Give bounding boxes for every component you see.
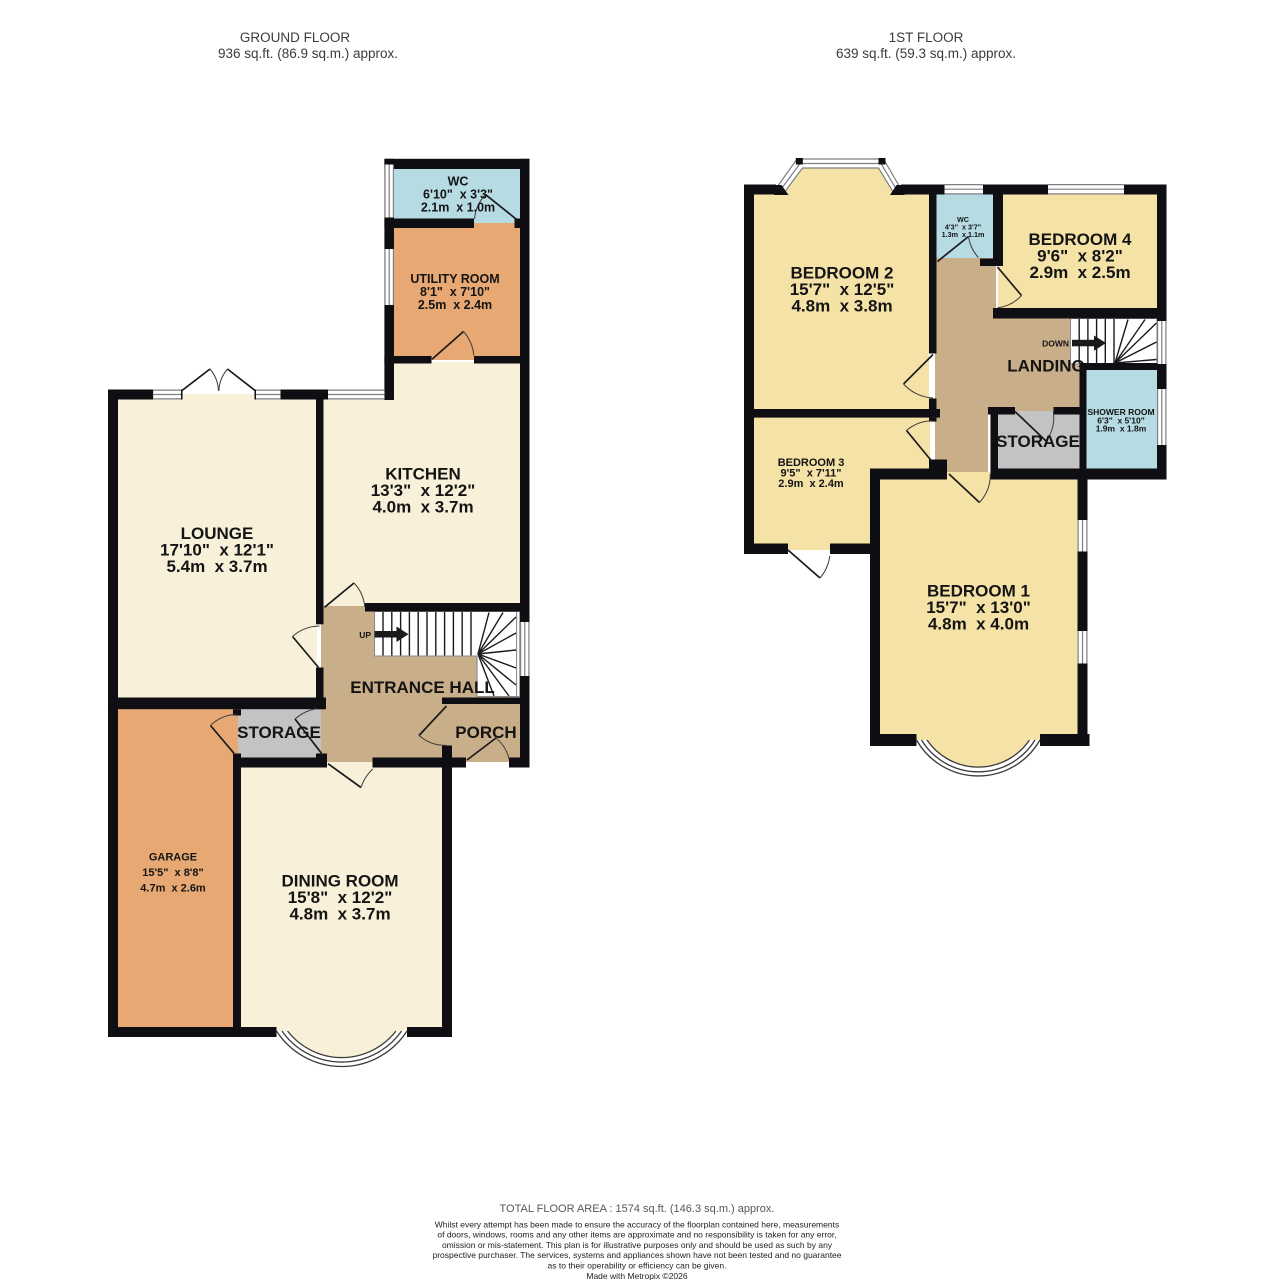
svg-text:of doors, windows, rooms and a: of doors, windows, rooms and any other i… (437, 1230, 836, 1240)
svg-text:5.4m x 3.7m: 5.4m x 3.7m (166, 557, 267, 576)
svg-text:4.7m x 2.6m: 4.7m x 2.6m (140, 883, 206, 895)
svg-text:TOTAL FLOOR AREA : 1574 sq.ft.: TOTAL FLOOR AREA : 1574 sq.ft. (146.3 sq… (500, 1203, 775, 1215)
svg-text:UP: UP (359, 630, 371, 640)
svg-text:4.0m x 3.7m: 4.0m x 3.7m (372, 498, 473, 517)
svg-text:1.3m x 1.1m: 1.3m x 1.1m (942, 230, 985, 239)
svg-text:ENTRANCE HALL: ENTRANCE HALL (350, 678, 495, 697)
svg-text:2.5m x 2.4m: 2.5m x 2.4m (418, 298, 492, 312)
svg-text:Made with Metropix ©2026: Made with Metropix ©2026 (586, 1271, 688, 1280)
svg-text:15'5" x 8'8": 15'5" x 8'8" (142, 867, 204, 879)
svg-text:as to their operability or eff: as to their operability or efficiency ca… (548, 1261, 727, 1271)
svg-text:WC: WC (448, 175, 469, 189)
svg-text:1ST FLOOR: 1ST FLOOR (889, 30, 964, 45)
svg-text:GARAGE: GARAGE (149, 852, 197, 864)
svg-text:LANDING: LANDING (1007, 357, 1084, 376)
svg-text:STORAGE: STORAGE (237, 723, 321, 742)
svg-text:GROUND FLOOR: GROUND FLOOR (240, 30, 351, 45)
svg-text:DOWN: DOWN (1042, 339, 1069, 349)
svg-text:4.8m x 4.0m: 4.8m x 4.0m (928, 615, 1029, 634)
svg-text:1.9m x 1.8m: 1.9m x 1.8m (1096, 424, 1147, 434)
svg-text:4.8m x 3.8m: 4.8m x 3.8m (791, 297, 892, 316)
svg-text:UTILITY ROOM: UTILITY ROOM (410, 272, 499, 286)
svg-text:2.9m x 2.4m: 2.9m x 2.4m (778, 478, 844, 490)
svg-text:639 sq.ft. (59.3 sq.m.) approx: 639 sq.ft. (59.3 sq.m.) approx. (836, 46, 1016, 61)
svg-text:STORAGE: STORAGE (996, 432, 1080, 451)
svg-text:2.1m x 1.0m: 2.1m x 1.0m (421, 201, 495, 215)
svg-text:PORCH: PORCH (455, 723, 516, 742)
svg-text:Whilst every attempt has been: Whilst every attempt has been made to en… (435, 1219, 839, 1229)
svg-text:omission or mis-statement. Thi: omission or mis-statement. This plan is … (442, 1240, 833, 1250)
svg-text:936 sq.ft. (86.9 sq.m.) approx: 936 sq.ft. (86.9 sq.m.) approx. (218, 46, 398, 61)
svg-text:8'1" x 7'10": 8'1" x 7'10" (420, 285, 490, 299)
svg-text:6'10" x 3'3": 6'10" x 3'3" (423, 188, 493, 202)
svg-text:prospective purchaser. The ser: prospective purchaser. The services, sys… (432, 1250, 841, 1260)
svg-text:2.9m x 2.5m: 2.9m x 2.5m (1029, 263, 1130, 282)
svg-text:4.8m x 3.7m: 4.8m x 3.7m (289, 905, 390, 924)
